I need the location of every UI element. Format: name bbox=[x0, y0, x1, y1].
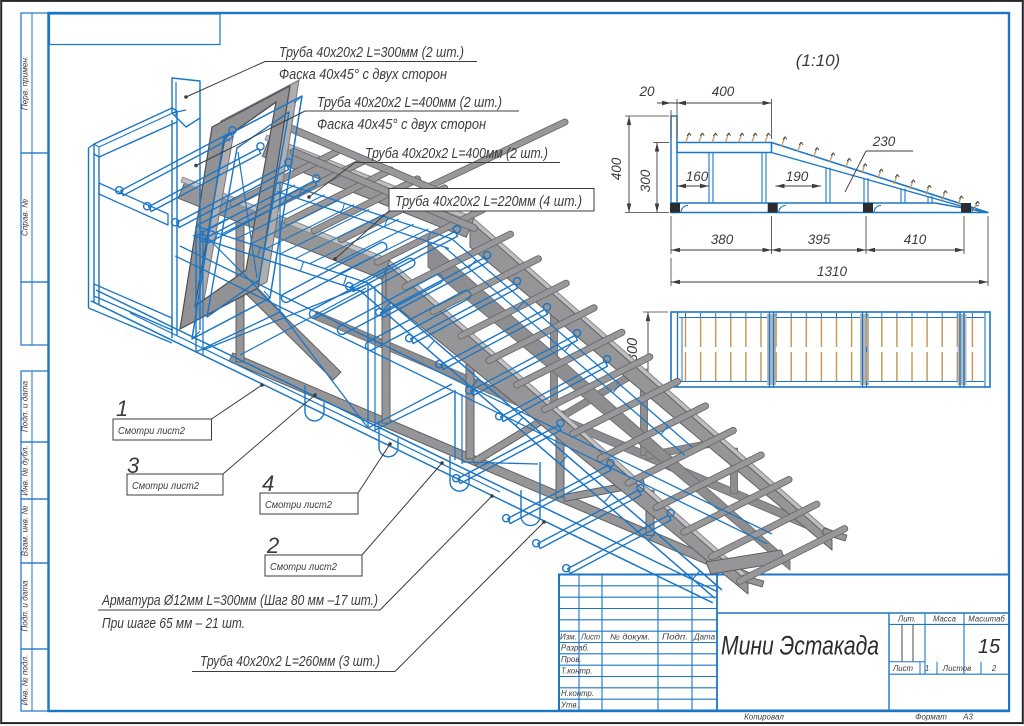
svg-text:Инв. № дубл.: Инв. № дубл. bbox=[21, 445, 30, 495]
svg-text:Копировал: Копировал bbox=[744, 713, 784, 722]
svg-text:Т.контр.: Т.контр. bbox=[561, 666, 592, 675]
svg-text:А3: А3 bbox=[962, 713, 973, 722]
svg-text:190: 190 bbox=[786, 169, 809, 184]
svg-text:160: 160 bbox=[686, 169, 709, 184]
svg-text:Лист: Лист bbox=[892, 664, 914, 673]
svg-text:Справ. №: Справ. № bbox=[21, 199, 30, 236]
svg-text:Взам. инв. №: Взам. инв. № bbox=[21, 506, 30, 557]
svg-text:410: 410 bbox=[904, 232, 927, 247]
svg-text:Н.контр.: Н.контр. bbox=[561, 689, 594, 698]
svg-text:395: 395 bbox=[808, 232, 831, 247]
svg-text:1: 1 bbox=[116, 396, 128, 421]
svg-text:Труба 40х20х2 L=400мм (2 шт.): Труба 40х20х2 L=400мм (2 шт.) bbox=[317, 95, 502, 111]
svg-text:Лит.: Лит. bbox=[897, 614, 916, 623]
svg-text:№ докум.: № докум. bbox=[610, 632, 650, 641]
svg-text:Арматура Ø12мм L=300мм (Шаг 8: Арматура Ø12мм L=300мм (Шаг 80 мм –17 шт… bbox=[101, 593, 378, 609]
svg-text:Труба 40х20х2 L=300мм (2 шт.): Труба 40х20х2 L=300мм (2 шт.) bbox=[279, 45, 464, 61]
svg-text:Масса: Масса bbox=[933, 614, 957, 623]
svg-text:Смотри лист2: Смотри лист2 bbox=[132, 480, 199, 492]
svg-text:Подп. и дата: Подп. и дата bbox=[21, 580, 30, 632]
svg-text:Подп.: Подп. bbox=[662, 632, 688, 641]
svg-text:При шаге 65 мм – 21 шт.: При шаге 65 мм – 21 шт. bbox=[102, 616, 245, 632]
svg-text:20: 20 bbox=[638, 84, 655, 99]
svg-text:Труба 40х20х2 L=400мм (2 шт.): Труба 40х20х2 L=400мм (2 шт.) bbox=[365, 146, 548, 162]
svg-text:15: 15 bbox=[978, 636, 1001, 658]
svg-text:380: 380 bbox=[711, 232, 734, 247]
svg-text:Пров.: Пров. bbox=[561, 655, 582, 664]
svg-text:Перв. примен.: Перв. примен. bbox=[21, 56, 30, 110]
svg-text:Подп. и дата: Подп. и дата bbox=[21, 380, 30, 432]
svg-text:Фаска 40х45° с двух сторон: Фаска 40х45° с двух сторон bbox=[279, 67, 447, 83]
svg-text:4: 4 bbox=[262, 471, 274, 496]
svg-text:Смотри лист2: Смотри лист2 bbox=[265, 499, 332, 511]
svg-text:1: 1 bbox=[925, 664, 929, 673]
svg-text:Смотри лист2: Смотри лист2 bbox=[270, 561, 337, 573]
svg-text:Труба 40х20х2 L=220мм (4 шт.): Труба 40х20х2 L=220мм (4 шт.) bbox=[395, 194, 582, 210]
svg-text:230: 230 bbox=[872, 134, 896, 149]
svg-text:300: 300 bbox=[638, 169, 653, 192]
svg-text:Формат: Формат bbox=[915, 713, 947, 722]
svg-text:Дата: Дата bbox=[693, 632, 716, 641]
svg-text:2: 2 bbox=[991, 664, 997, 673]
svg-text:Масштаб: Масштаб bbox=[968, 614, 1005, 623]
svg-text:2: 2 bbox=[266, 533, 279, 558]
svg-text:Смотри лист2: Смотри лист2 bbox=[118, 425, 185, 437]
svg-text:Утв.: Утв. bbox=[560, 700, 579, 709]
svg-text:Инв. № подл.: Инв. № подл. bbox=[21, 655, 30, 706]
svg-text:Фаска 40х45° с двух сторон: Фаска 40х45° с двух сторон bbox=[317, 117, 486, 133]
svg-text:Изм.: Изм. bbox=[560, 632, 577, 641]
svg-text:400: 400 bbox=[712, 84, 735, 99]
svg-text:Листов: Листов bbox=[942, 664, 971, 673]
svg-text:1310: 1310 bbox=[817, 264, 848, 279]
svg-text:Труба 40х20х2 L=260мм (3 шт.): Труба 40х20х2 L=260мм (3 шт.) bbox=[200, 654, 380, 670]
svg-text:(1:10): (1:10) bbox=[796, 51, 840, 70]
svg-text:Лист: Лист bbox=[580, 632, 600, 641]
svg-text:400: 400 bbox=[609, 157, 624, 180]
svg-text:Разраб.: Разраб. bbox=[561, 644, 589, 653]
svg-text:Мини Эстакада: Мини Эстакада bbox=[721, 631, 879, 661]
